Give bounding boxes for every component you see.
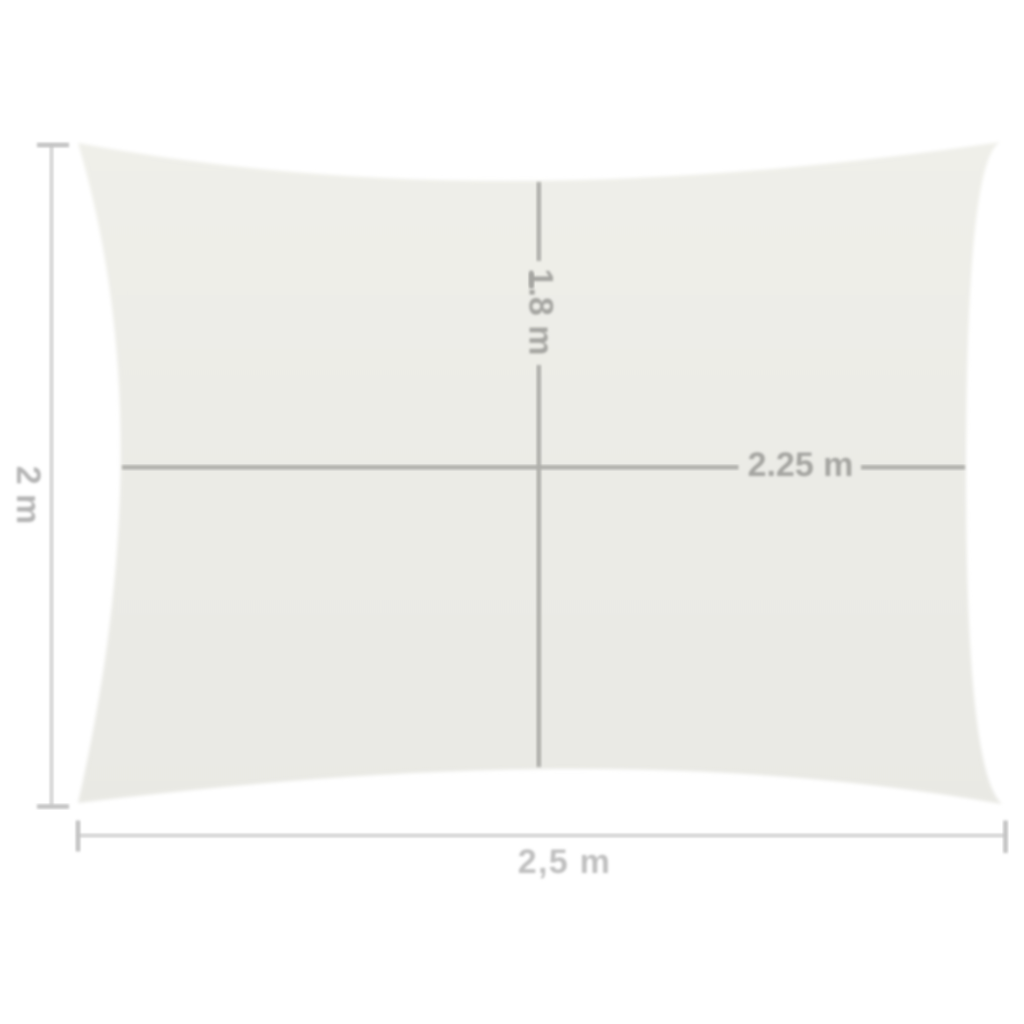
svg-text:2 m: 2 m (9, 466, 47, 525)
svg-text:2,5 m: 2,5 m (518, 843, 611, 881)
svg-text:1.8 m: 1.8 m (522, 269, 560, 356)
svg-text:2.25 m: 2.25 m (748, 446, 854, 484)
